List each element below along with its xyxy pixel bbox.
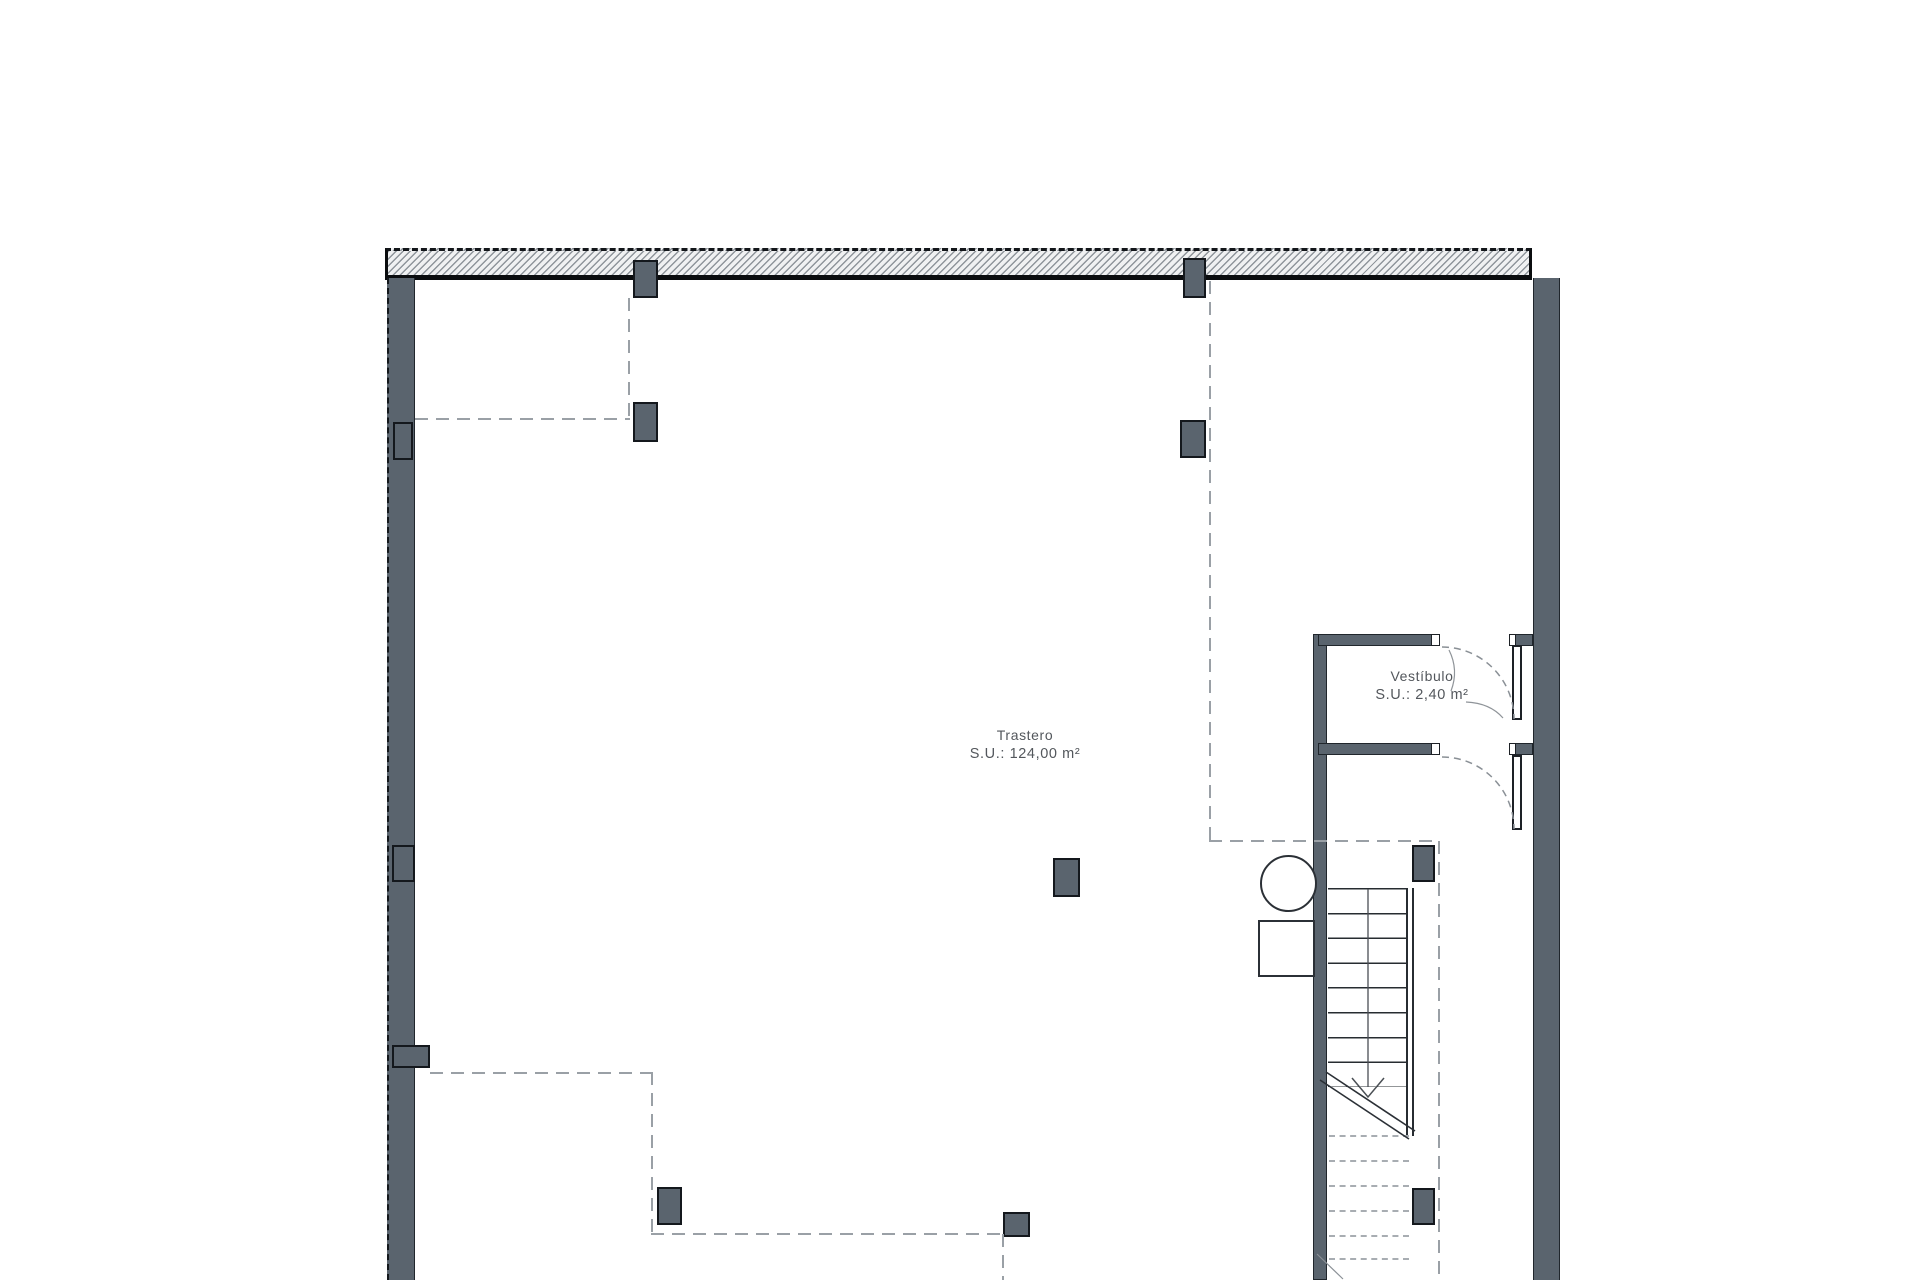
- room-label-trastero: Trastero S.U.: 124,00 m²: [915, 726, 1135, 764]
- room-area-vestibulo: S.U.: 2,40 m²: [1332, 686, 1512, 705]
- door-swing-arc-lower: [1442, 757, 1514, 829]
- stair-break-line: [1317, 1254, 1343, 1279]
- room-name-trastero: Trastero: [915, 726, 1135, 745]
- floor-plan-canvas: Trastero S.U.: 124,00 m² Vestíbulo S.U.:…: [0, 0, 1920, 1280]
- room-area-trastero: S.U.: 124,00 m²: [915, 745, 1135, 764]
- annotation-overlay: [0, 0, 1920, 1280]
- stair-break-line: [1320, 1080, 1409, 1139]
- room-label-vestibulo: Vestíbulo S.U.: 2,40 m²: [1332, 667, 1512, 705]
- room-name-vestibulo: Vestíbulo: [1332, 667, 1512, 686]
- stair-break-line: [1326, 1072, 1415, 1131]
